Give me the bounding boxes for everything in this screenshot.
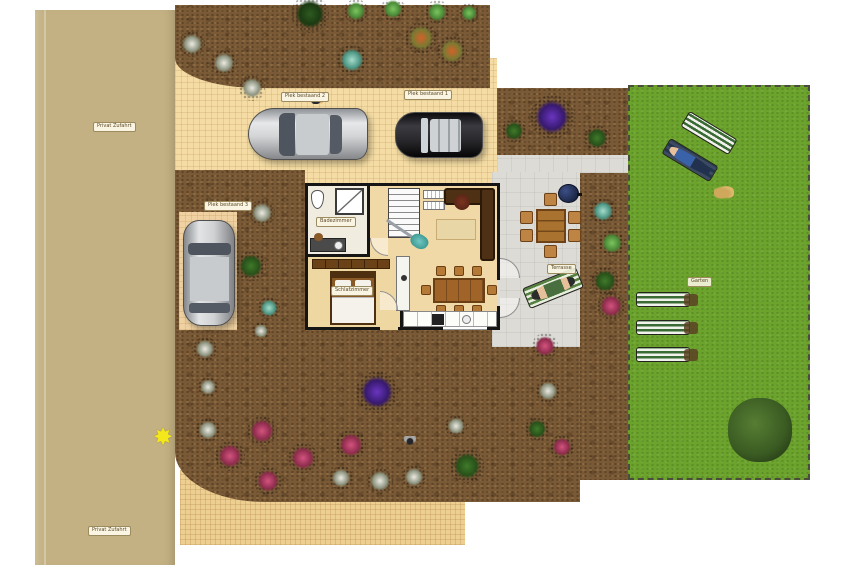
dining-chair	[421, 285, 431, 295]
terrace-chair	[568, 211, 581, 224]
bed	[330, 271, 376, 325]
lawn	[628, 85, 810, 480]
bed-blanket	[332, 297, 374, 323]
lounger-shadow	[684, 294, 698, 306]
door-arc	[370, 238, 388, 256]
terrace-chair	[520, 229, 533, 242]
car-rear-window	[189, 303, 230, 313]
toilet	[311, 190, 324, 209]
garden-bed-right	[578, 158, 628, 480]
car-rear-window	[330, 115, 342, 154]
wardrobe	[312, 259, 390, 269]
sun-lounger-2	[636, 320, 690, 335]
terrace-chair	[544, 193, 557, 206]
car-open-interior	[430, 119, 461, 152]
person-on-lounger	[667, 144, 712, 177]
dining-chair	[454, 266, 464, 276]
entry-door-gap	[380, 327, 398, 330]
house-floorplan	[305, 183, 500, 330]
garden-bed-bottom	[175, 330, 580, 502]
terrace-chair	[568, 229, 581, 242]
dining-table	[433, 278, 485, 303]
terrace-chair	[520, 211, 533, 224]
terrace-table	[536, 209, 566, 243]
grill-handle	[577, 193, 582, 196]
car-black-convertible	[395, 112, 483, 158]
car-windshield	[188, 243, 231, 255]
label-terrace: Terrasse	[547, 264, 576, 274]
garden-bed-upper-right	[497, 88, 628, 158]
label-bedroom: Schlafzimmer	[331, 286, 373, 296]
car-roof	[296, 114, 329, 155]
label-road-top: Privat Zufahrt	[93, 122, 136, 132]
car-suv	[183, 220, 235, 326]
garden-bed-top	[175, 5, 490, 88]
coffee-table	[436, 219, 476, 240]
person-on-sofa	[454, 194, 470, 210]
car-silver	[248, 108, 368, 160]
sun-lounger-3	[636, 347, 690, 362]
tree	[728, 398, 792, 462]
garden-floorplan-canvas: ✸ Privat Zufahrt Privat Zufahrt Plek bes…	[0, 0, 848, 565]
island-sink	[401, 275, 407, 281]
towel	[314, 233, 323, 241]
lounger-shadow	[684, 349, 698, 361]
car-windshield	[421, 118, 428, 153]
sun-lounger-1	[636, 292, 690, 307]
label-garden: Garten	[687, 277, 712, 287]
sofa	[480, 188, 495, 261]
dining-chair	[472, 266, 482, 276]
car-roof	[190, 257, 229, 301]
label-parking-spot-1: Plek bestaand 1	[404, 90, 452, 100]
guitar-body	[408, 231, 431, 253]
storage-box	[423, 201, 445, 210]
label-road-bottom: Privat Zufahrt	[88, 526, 131, 536]
car-windshield	[279, 113, 295, 156]
private-road	[35, 10, 175, 565]
label-parking-spot-3: Plek bestaand 3	[204, 201, 252, 211]
shower	[335, 188, 364, 215]
bed-headboard	[332, 273, 374, 278]
window	[443, 326, 487, 330]
stove	[432, 314, 444, 325]
dining-chair	[487, 285, 497, 295]
sink	[334, 241, 343, 250]
terrace-chair	[544, 245, 557, 258]
kitchen-counter	[403, 311, 497, 327]
bbq-grill	[558, 184, 579, 203]
lounger-shadow	[684, 322, 698, 334]
label-bathroom: Badezimmer	[316, 217, 356, 227]
label-parking-spot-2: Plek bestaand 2	[281, 92, 329, 102]
dining-chair	[436, 266, 446, 276]
terrace-paving-top	[497, 155, 628, 173]
kitchen-island	[396, 256, 410, 311]
storage-box	[423, 190, 445, 199]
kitchen-sink	[462, 315, 471, 324]
